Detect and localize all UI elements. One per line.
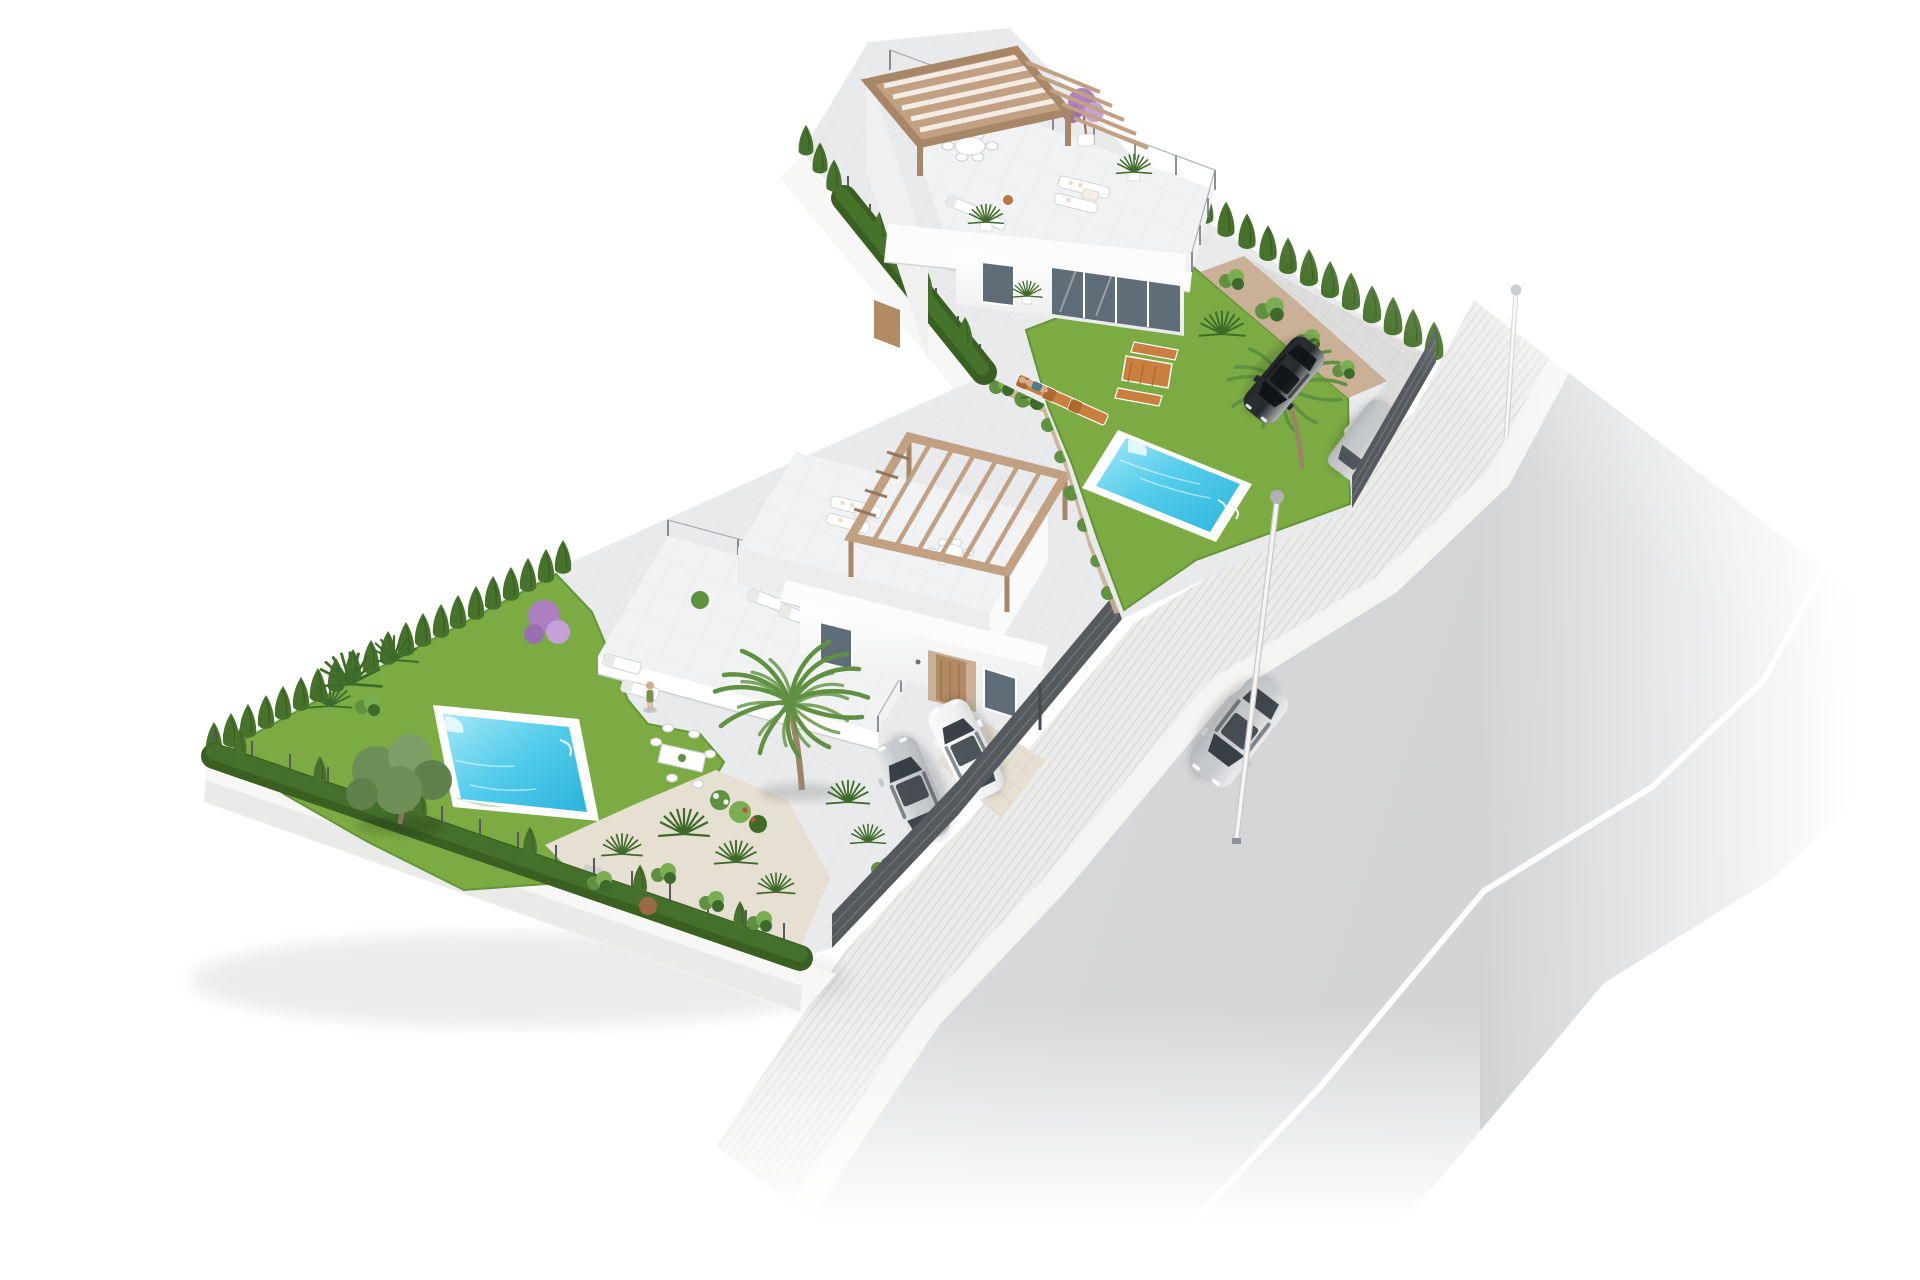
fire-bowl — [1003, 195, 1013, 205]
aerial-render-canvas — [0, 0, 1920, 1280]
scene-root — [0, 0, 1920, 1280]
potted-plant — [691, 591, 709, 609]
wall-lamp — [916, 660, 921, 665]
swimming-pool-lower — [433, 705, 599, 821]
rust-shrub — [639, 897, 657, 915]
lower-villa-window-right — [984, 668, 1016, 718]
top-villa-window — [982, 262, 1014, 306]
